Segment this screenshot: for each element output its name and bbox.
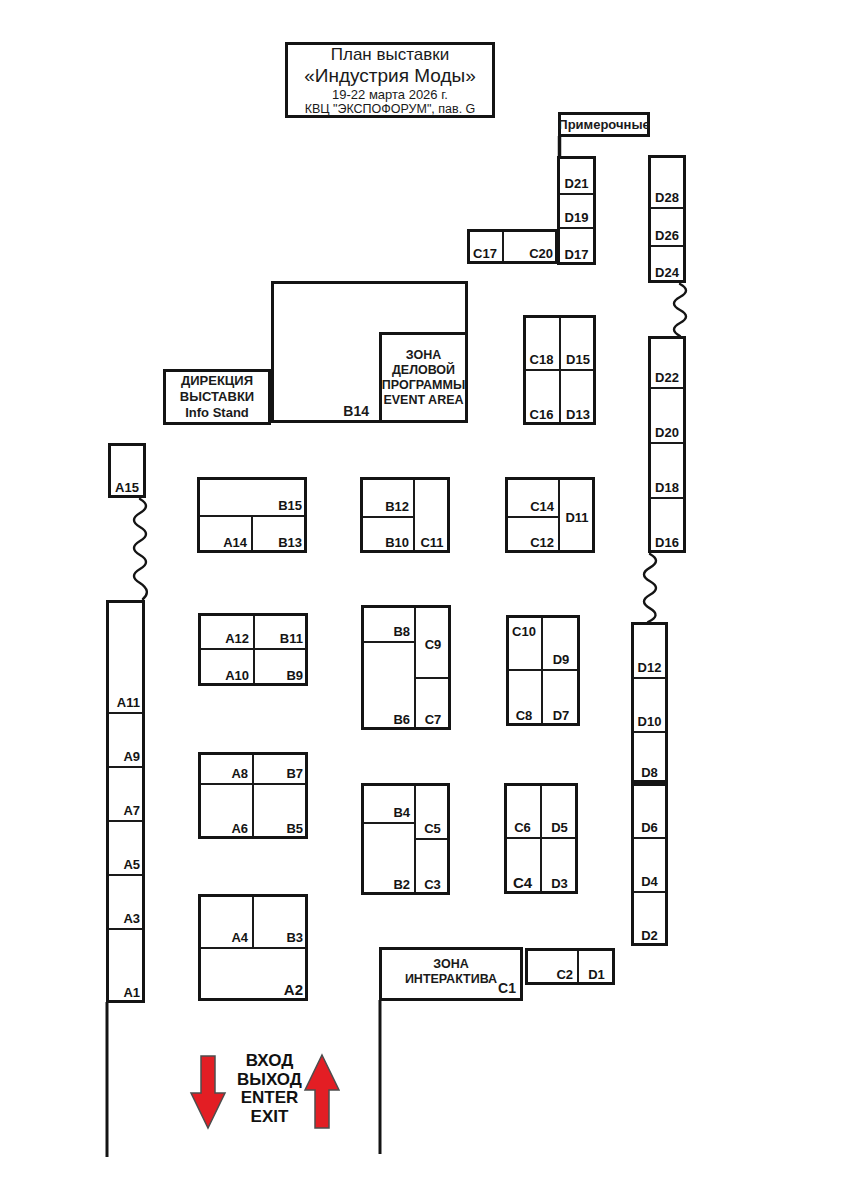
booth-d9: D9 — [542, 615, 580, 670]
booth-a6: A6 — [198, 784, 253, 839]
booth-a10: A10 — [198, 649, 254, 686]
booth-b11: B11 — [254, 613, 308, 649]
booth-label: C16 — [524, 408, 559, 421]
booth-d1: D1 — [578, 948, 615, 985]
booth-d7: D7 — [542, 670, 580, 726]
entrance-line4: EXIT — [222, 1108, 317, 1127]
booth-c18: C18 — [523, 315, 560, 370]
booth-label: C2 — [556, 968, 573, 981]
booth-label: C3 — [416, 878, 449, 891]
booth-c12: C12 — [505, 517, 559, 553]
booth-label: C14 — [530, 500, 554, 513]
booth-label: A4 — [231, 931, 248, 944]
booth-a9: A9 — [106, 713, 145, 767]
booth-d10: D10 — [631, 678, 668, 732]
booth-label: D3 — [542, 877, 577, 890]
booth-label: D11 — [560, 511, 594, 524]
booth-d26: D26 — [648, 208, 686, 246]
booth-label: A7 — [123, 804, 140, 817]
event-area-line4: EVENT AREA — [383, 393, 463, 408]
booth-a3: A3 — [106, 875, 145, 929]
booth-b5: B5 — [253, 784, 308, 839]
booth-d21: D21 — [557, 156, 596, 194]
booth-b12: B12 — [360, 477, 414, 517]
entrance-line2: ВЫХОД — [222, 1071, 317, 1090]
booth-a14: A14 — [197, 516, 252, 553]
booth-c10: C10 — [506, 615, 542, 670]
booth-d13: D13 — [560, 370, 596, 425]
booth-label: A14 — [223, 536, 247, 549]
booth-label: B8 — [393, 625, 410, 638]
booth-d12: D12 — [631, 622, 668, 678]
booth-label: C20 — [529, 247, 553, 260]
booth-a12: A12 — [198, 613, 254, 649]
booth-d17: D17 — [557, 228, 596, 265]
booth-label: A10 — [225, 669, 249, 682]
booth-label: D4 — [632, 875, 667, 888]
booth-label: A1 — [123, 986, 140, 999]
booth-label: C8 — [507, 709, 541, 722]
squiggle-break — [674, 284, 686, 336]
booth-label: A15 — [109, 481, 145, 494]
booth-b3: B3 — [253, 894, 308, 948]
booth-label: B3 — [286, 931, 303, 944]
booth-d4: D4 — [631, 838, 668, 892]
booth-label: A6 — [231, 822, 248, 835]
booth-d24: D24 — [648, 246, 686, 283]
booth-d15: D15 — [560, 315, 596, 370]
booth-label: D9 — [543, 653, 579, 666]
booth-d28: D28 — [648, 155, 686, 208]
plan-venue: КВЦ "ЭКСПОФОРУМ", пав. G — [305, 102, 476, 116]
booth-label: D28 — [649, 191, 685, 204]
booth-c11: C11 — [414, 477, 450, 553]
booth-a5: A5 — [106, 821, 145, 875]
booth-a1: A1 — [106, 929, 145, 1003]
booth-label: D1 — [579, 968, 614, 981]
booth-c6: C6 — [504, 783, 541, 838]
booth-label: D20 — [649, 426, 685, 439]
booth-b2: B2 — [361, 823, 415, 895]
booth-d6: D6 — [631, 783, 668, 838]
booth-label: D15 — [561, 353, 595, 366]
booth-label: C9 — [416, 638, 450, 651]
booth-d8: D8 — [631, 732, 668, 783]
booth-a11: A11 — [106, 600, 145, 713]
booth-c17: C17 — [467, 229, 503, 264]
booth-b15: B15 — [197, 477, 307, 516]
booth-label: A12 — [225, 632, 249, 645]
dressing-rooms-label: Примерочные — [558, 117, 649, 132]
event-area-line1: ЗОНА — [406, 348, 441, 363]
booth-label: D16 — [649, 536, 685, 549]
booth-c1-label: C1 — [498, 980, 516, 996]
booth-label: D13 — [561, 408, 595, 421]
booth-label: A9 — [123, 750, 140, 763]
booth-b13: B13 — [252, 516, 307, 553]
booth-label: B14 — [343, 403, 369, 419]
booth-label: B11 — [280, 632, 303, 645]
booth-label: D2 — [632, 929, 667, 942]
booth-d22: D22 — [648, 336, 686, 388]
event-area-line2: ДЕЛОВОЙ — [392, 363, 455, 378]
entrance-line3: ENTER — [222, 1089, 317, 1108]
entrance-label: ВХОД ВЫХОД ENTER EXIT — [222, 1052, 317, 1126]
interactive-line1: ЗОНА — [433, 957, 468, 971]
booth-label: C6 — [505, 821, 540, 834]
booth-label: D22 — [649, 371, 685, 384]
dressing-rooms-box: Примерочные — [558, 112, 650, 137]
booth-label: B13 — [278, 536, 302, 549]
booth-label: A2 — [284, 982, 303, 997]
interactive-line2: ИНТЕРАКТИВА — [405, 972, 497, 986]
booth-label: B15 — [278, 499, 302, 512]
booth-label: C4 — [505, 875, 540, 890]
plan-date: 19-22 марта 2026 г. — [332, 87, 448, 102]
direction-box: ДИРЕКЦИЯ ВЫСТАВКИ Info Stand — [163, 369, 271, 425]
booth-label: A5 — [123, 858, 140, 871]
booth-label: B7 — [286, 767, 303, 780]
booth-label: D21 — [558, 177, 595, 190]
booth-label: D17 — [558, 248, 595, 261]
booth-label: D8 — [632, 766, 667, 779]
plan-title-line1: План выставки — [331, 45, 449, 65]
booth-label: A8 — [231, 767, 248, 780]
booth-c14: C14 — [505, 477, 559, 517]
booth-label: B10 — [385, 536, 409, 549]
booth-label: D10 — [632, 715, 667, 728]
booth-label: C12 — [530, 536, 554, 549]
booth-label: B4 — [393, 806, 410, 819]
direction-line2: ВЫСТАВКИ — [180, 389, 254, 405]
booth-c8: C8 — [506, 670, 542, 726]
booth-d11: D11 — [559, 477, 595, 553]
booth-c9: C9 — [415, 605, 451, 678]
booth-label: D7 — [543, 709, 579, 722]
booth-label: B2 — [393, 878, 410, 891]
booth-label: C11 — [415, 536, 449, 549]
floor-plan: План выставки «Индустрия Моды» 19-22 мар… — [0, 0, 848, 1200]
booth-label: B5 — [286, 822, 303, 835]
booth-a2: A2 — [198, 948, 308, 1001]
direction-line3: Info Stand — [185, 405, 249, 421]
booth-d16: D16 — [648, 498, 686, 553]
booth-label: D6 — [632, 821, 667, 834]
booth-c20: C20 — [503, 229, 558, 264]
booth-b4: B4 — [361, 783, 415, 823]
booth-c2: C2 — [525, 948, 578, 985]
squiggle-break — [644, 554, 656, 622]
booth-d5: D5 — [541, 783, 578, 838]
booth-a4: A4 — [198, 894, 253, 948]
booth-label: C7 — [416, 713, 450, 726]
booth-label: D26 — [649, 229, 685, 242]
booth-d2: D2 — [631, 892, 668, 946]
booth-label: C5 — [416, 822, 449, 835]
booth-a8: A8 — [198, 752, 253, 784]
booth-a7: A7 — [106, 767, 145, 821]
booth-label: D18 — [649, 481, 685, 494]
booth-label: B6 — [393, 713, 410, 726]
booth-c16: C16 — [523, 370, 560, 425]
booth-label: C10 — [507, 625, 541, 638]
booth-d20: D20 — [648, 388, 686, 443]
entrance-line1: ВХОД — [222, 1052, 317, 1071]
booth-d3: D3 — [541, 838, 578, 894]
event-area-box: ЗОНА ДЕЛОВОЙ ПРОГРАММЫ EVENT AREA — [379, 332, 468, 423]
booth-label: D5 — [542, 821, 577, 834]
booth-b8: B8 — [361, 605, 415, 642]
squiggle-break — [134, 499, 147, 599]
direction-line1: ДИРЕКЦИЯ — [181, 373, 253, 389]
booth-b9: B9 — [254, 649, 308, 686]
title-box: План выставки «Индустрия Моды» 19-22 мар… — [285, 42, 495, 118]
booth-label: C17 — [468, 247, 502, 260]
booth-c5: C5 — [415, 783, 450, 839]
booth-b7: B7 — [253, 752, 308, 784]
booth-b10: B10 — [360, 517, 414, 553]
event-area-line3: ПРОГРАММЫ — [382, 378, 465, 393]
booth-label: C18 — [524, 353, 559, 366]
booth-c3: C3 — [415, 839, 450, 895]
interactive-zone-box: ЗОНА ИНТЕРАКТИВА C1 — [379, 947, 523, 1001]
booth-label: A3 — [123, 912, 140, 925]
plan-title-line2: «Индустрия Моды» — [304, 65, 476, 87]
booth-d19: D19 — [557, 194, 596, 228]
booth-a15: A15 — [108, 443, 146, 498]
exit-arrow-down — [191, 1056, 225, 1128]
booth-label: D19 — [558, 211, 595, 224]
booth-label: B12 — [385, 500, 409, 513]
booth-c4: C4 — [504, 838, 541, 894]
booth-label: D12 — [632, 661, 667, 674]
booth-label: D24 — [649, 266, 685, 279]
booth-label: B9 — [286, 669, 303, 682]
booth-b6: B6 — [361, 642, 415, 730]
booth-d18: D18 — [648, 443, 686, 498]
booth-label: A11 — [117, 696, 140, 709]
booth-c7: C7 — [415, 678, 451, 730]
